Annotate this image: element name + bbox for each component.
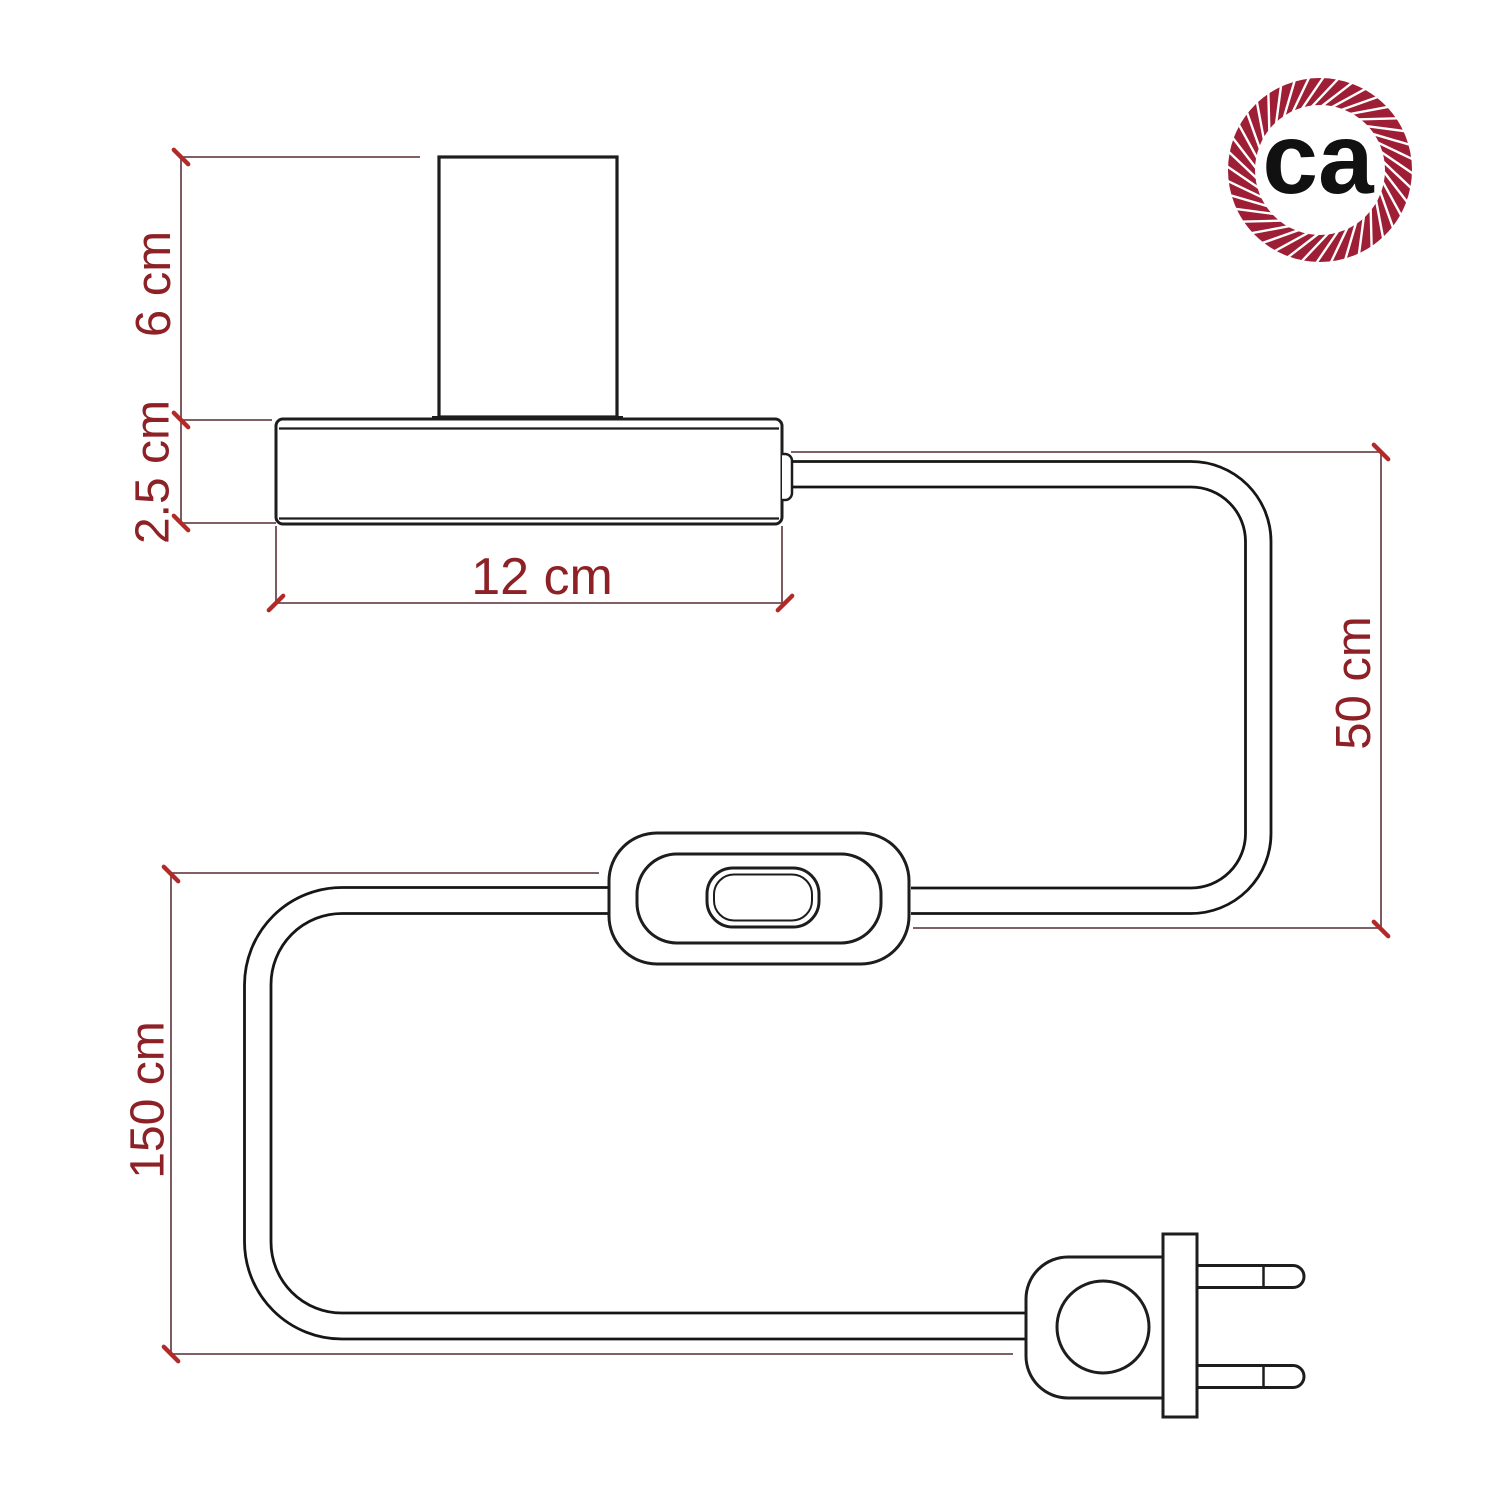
svg-text:ca: ca bbox=[1262, 103, 1375, 215]
svg-text:150 cm: 150 cm bbox=[122, 1021, 175, 1178]
svg-text:12 cm: 12 cm bbox=[471, 548, 613, 606]
svg-text:50 cm: 50 cm bbox=[1327, 616, 1381, 749]
svg-text:6 cm: 6 cm bbox=[127, 231, 181, 337]
svg-text:2.5 cm: 2.5 cm bbox=[127, 400, 180, 544]
